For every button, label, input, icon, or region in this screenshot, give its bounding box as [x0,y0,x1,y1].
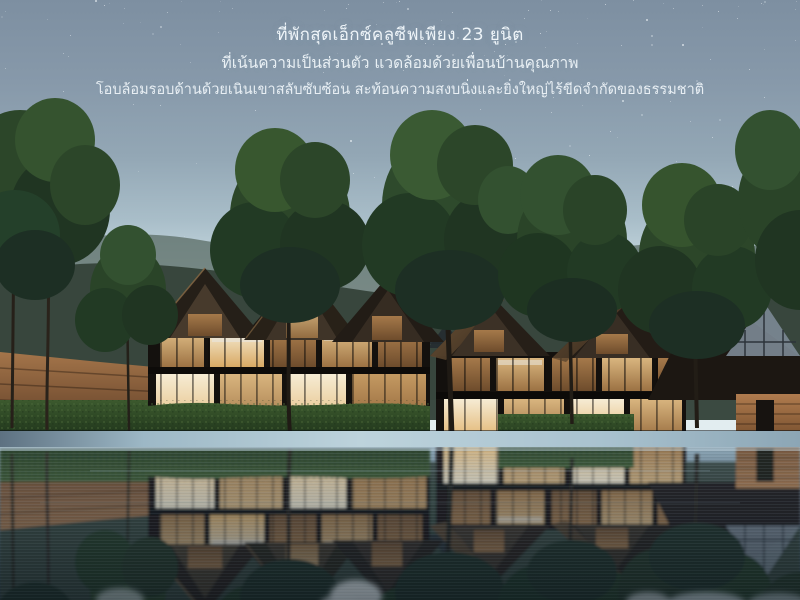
headline-line-1: ที่พักสุดเอ็กซ์คลูซีฟเพียง 23 ยูนิต [0,20,800,50]
headline-line-3: โอบล้อมรอบด้านด้วยเนินเขาสลับซับซ้อน สะท… [0,77,800,103]
hero-image: ที่พักสุดเอ็กซ์คลูซีฟเพียง 23 ยูนิต ที่เ… [0,0,800,600]
water-depth-shading [0,447,800,600]
headline-line-2: ที่เน้นความเป็นส่วนตัว แวดล้อมด้วยเพื่อน… [0,50,800,77]
headline-block: ที่พักสุดเอ็กซ์คลูซีฟเพียง 23 ยูนิต ที่เ… [0,20,800,103]
pool-edge [0,430,800,447]
